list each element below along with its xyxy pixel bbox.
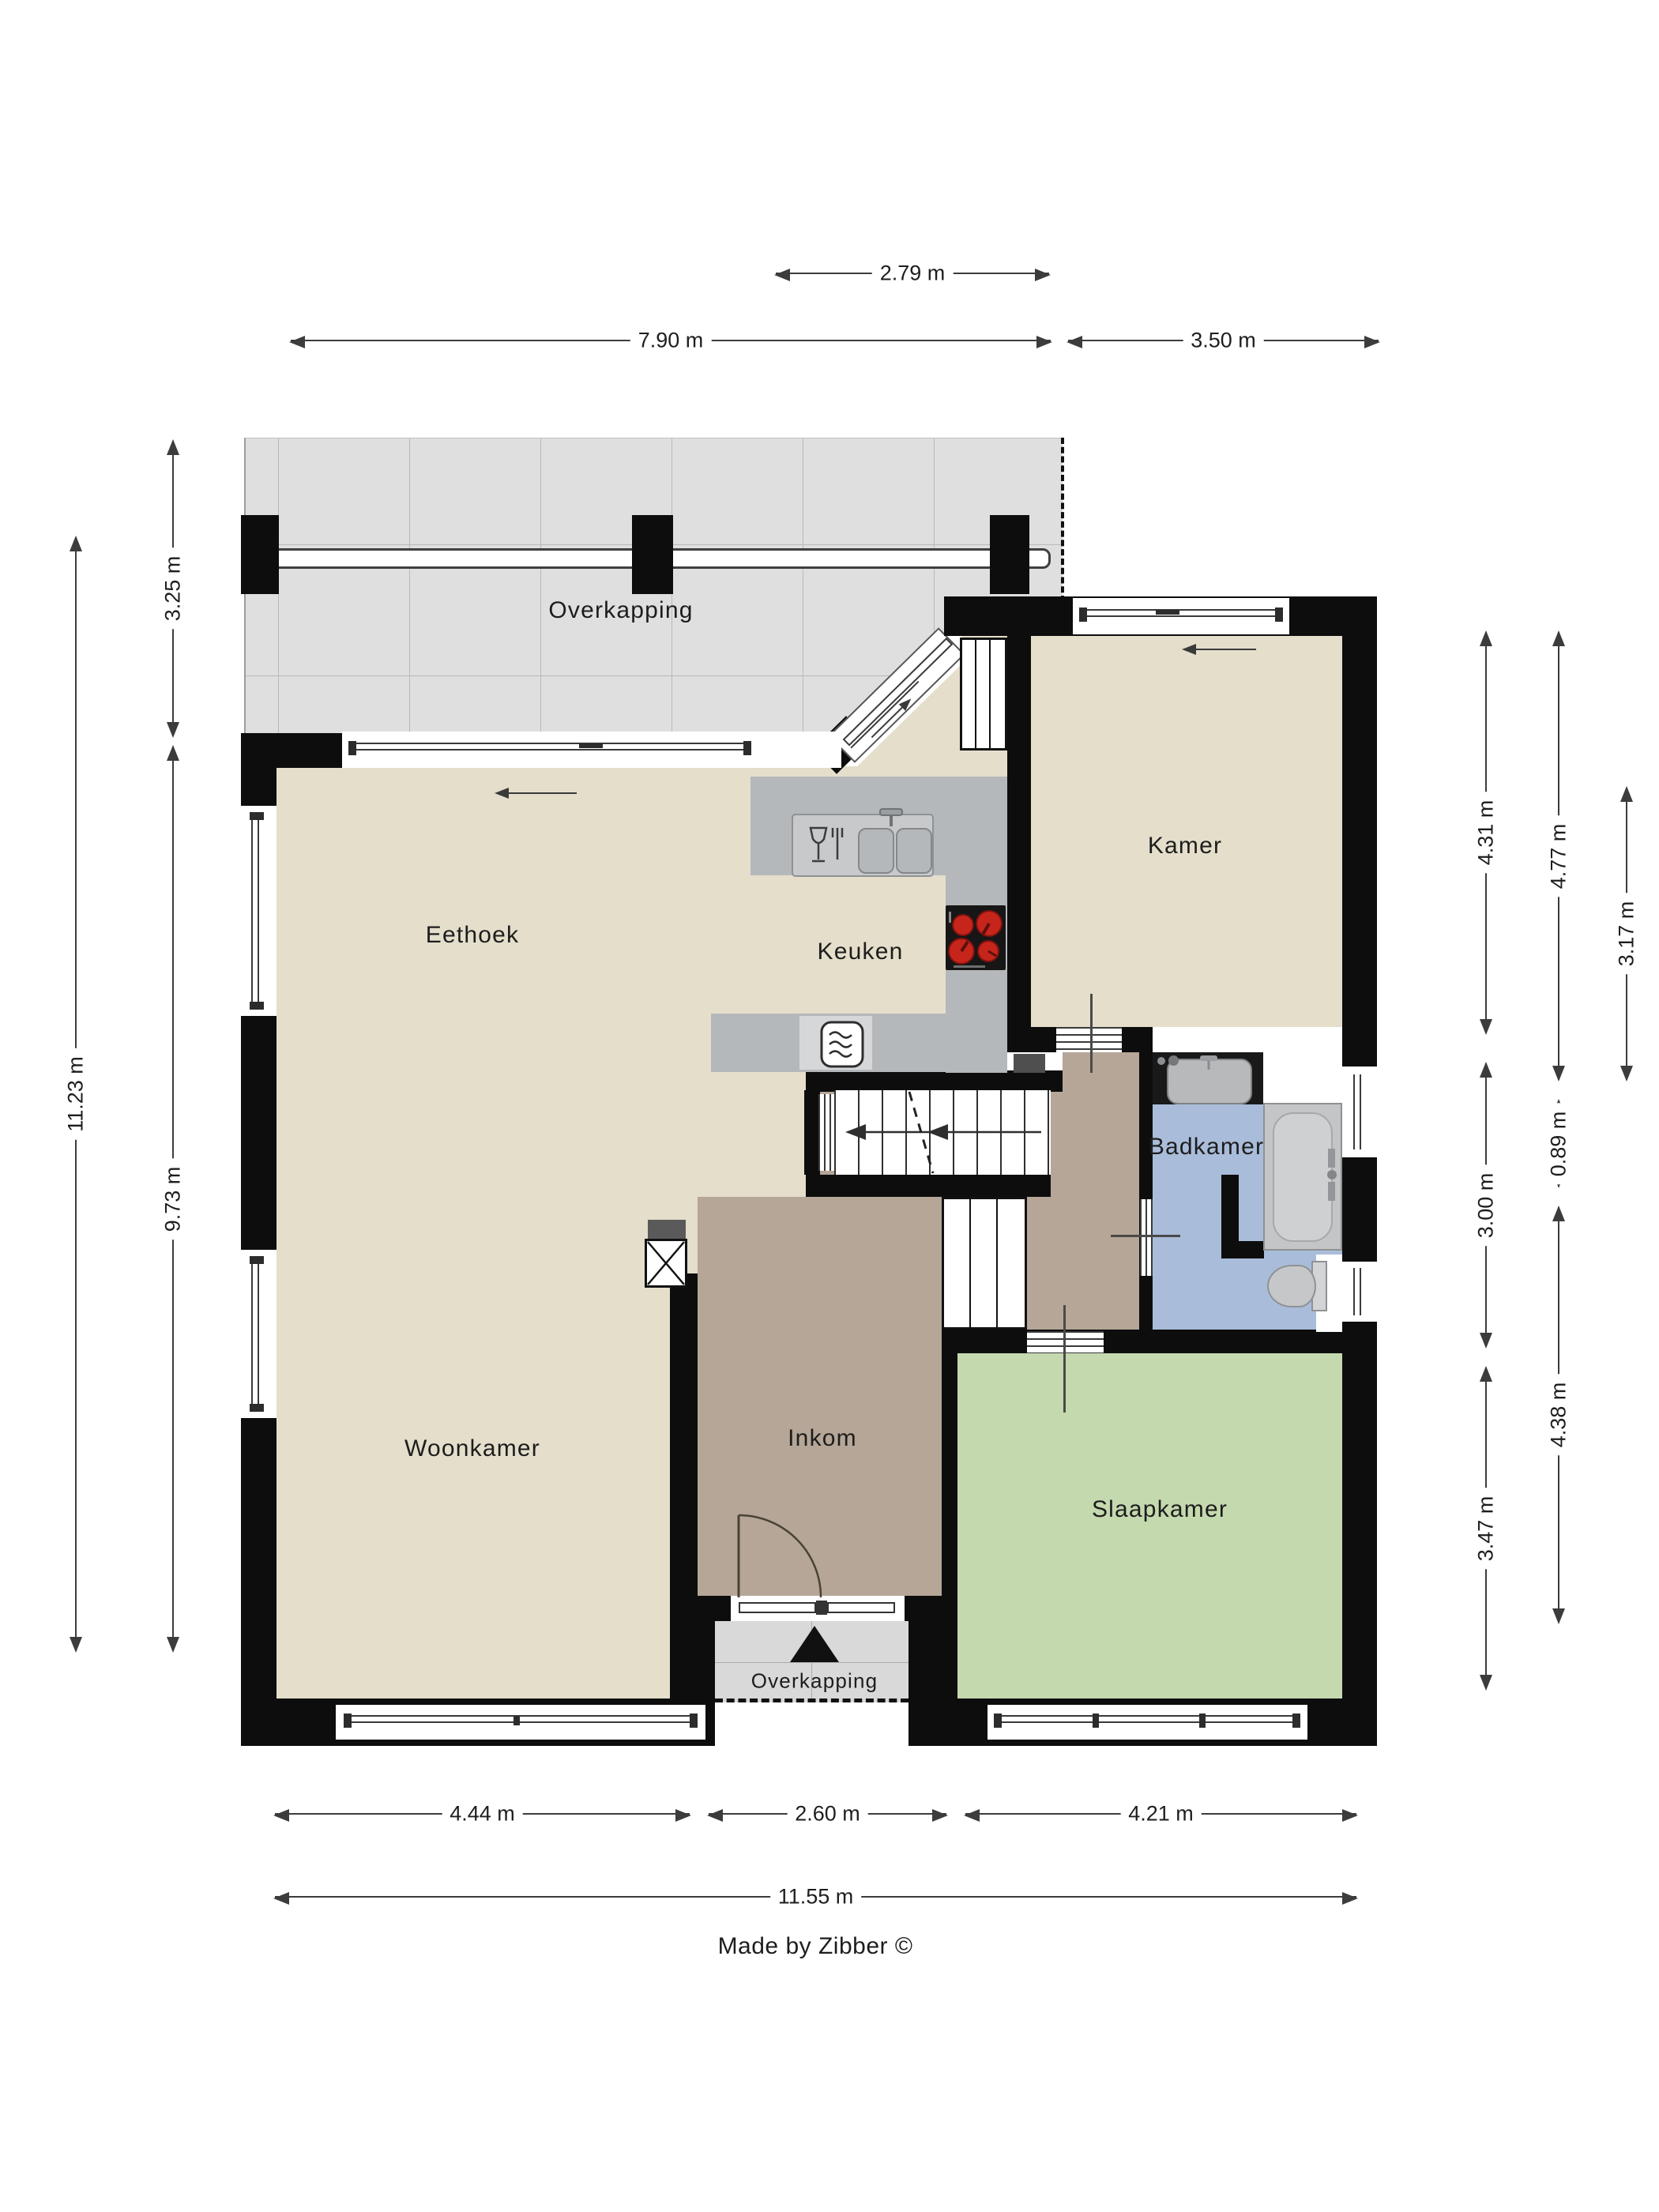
room-label-overkapping-top: Overkapping: [548, 597, 693, 624]
wall-kamer-west: [1007, 632, 1031, 1052]
dim-bottom-4-44: 4.44 m: [275, 1813, 690, 1815]
wall-entry-left: [670, 1596, 715, 1704]
window-cap: [1292, 1714, 1300, 1728]
room-floor-kamer: [1031, 636, 1342, 1027]
chimney-x-icon: [647, 1241, 685, 1285]
floorplan-page: { "title": "Floor plan (begane grond)", …: [0, 0, 1659, 2212]
window-cap: [348, 741, 356, 755]
room-label-overkapping-bottom: Overkapping: [751, 1669, 878, 1694]
footer-credit: Made by Zibber ©: [718, 1933, 913, 1960]
window-badkamer-upper: [1342, 1066, 1377, 1157]
window-cap: [743, 741, 751, 755]
dim-label: 4.77 m: [1547, 815, 1571, 897]
wall-below-stairs: [806, 1175, 1051, 1197]
window-cap: [1275, 608, 1283, 622]
room-floor-inkom-kamerdoor: [1063, 1052, 1139, 1092]
window-cap: [1199, 1714, 1206, 1728]
bathtub-inner: [1273, 1112, 1333, 1242]
terrace-post: [632, 515, 673, 594]
dim-left-9-73: 9.73 m: [172, 747, 174, 1651]
porch-grid-line: [715, 1662, 908, 1663]
window-cap: [579, 743, 603, 748]
terrace-post: [990, 515, 1029, 594]
wall-right: [1342, 596, 1377, 1746]
window-kamer-top: [1073, 598, 1289, 634]
room-label-woonkamer: Woonkamer: [404, 1435, 540, 1462]
wall-badkamer-west: [1139, 1051, 1153, 1335]
dim-label: 3.25 m: [161, 548, 186, 630]
terrace-post: [241, 515, 279, 594]
window-cap: [250, 1404, 264, 1412]
soap-dot: [1157, 1057, 1165, 1065]
room-floor-inkom-mid: [698, 1197, 1139, 1330]
window-eethoek-left: [239, 806, 276, 1016]
dim-bottom-11-55: 11.55 m: [275, 1896, 1356, 1898]
door-opening-stairs: [818, 1094, 836, 1171]
bath-vanity-counter: [1153, 1052, 1263, 1104]
window-woonkamer-left: [239, 1250, 276, 1418]
kitchen-sink-unit: [792, 814, 934, 877]
window-cap: [250, 1002, 264, 1010]
dim-left-11-23: 11.23 m: [75, 537, 77, 1651]
slide-arrow-icon: [490, 785, 585, 801]
window-glass: [997, 1715, 1297, 1723]
window-glass: [251, 1259, 259, 1409]
window-glass: [1353, 1268, 1361, 1315]
wall-entry-jamb: [715, 1596, 732, 1621]
stairs: [834, 1090, 1051, 1175]
dim-right-4-77: 4.77 m: [1558, 632, 1559, 1080]
closet-divider: [969, 1199, 971, 1327]
microwave-icon: [820, 1021, 864, 1068]
room-label-slaapkamer: Slaapkamer: [1092, 1496, 1228, 1523]
dim-bottom-2-60: 2.60 m: [709, 1813, 946, 1815]
terrace-dashed-edge: [1061, 438, 1064, 602]
bathtub-icon: [1263, 1103, 1342, 1251]
room-label-kamer: Kamer: [1148, 833, 1222, 860]
toilet-icon: [1267, 1259, 1343, 1311]
dim-label: 9.73 m: [161, 1158, 186, 1240]
closet-divider: [996, 1199, 998, 1327]
window-woonkamer-bottom: [336, 1705, 705, 1740]
closet-divider: [975, 640, 976, 748]
dim-left-3-25: 3.25 m: [172, 441, 174, 736]
dim-label: 3.00 m: [1474, 1164, 1499, 1246]
faucet-icon: [1197, 1054, 1221, 1071]
window-badkamer-lower: [1342, 1262, 1377, 1322]
dim-right-3-17: 3.17 m: [1626, 788, 1627, 1080]
slide-arrow-icon: [1177, 641, 1264, 657]
dim-top-2-79: 2.79 m: [776, 273, 1049, 274]
dim-label: 7.90 m: [630, 329, 712, 353]
dim-right-3-00: 3.00 m: [1485, 1063, 1487, 1347]
window-glass: [251, 815, 259, 1006]
dim-label: 3.50 m: [1183, 329, 1264, 353]
window-cap: [994, 1714, 1002, 1728]
door-opening-kamer: [1056, 1027, 1122, 1052]
window-eethoek-top: [342, 732, 841, 768]
window-cap: [250, 812, 264, 820]
window-glass: [1353, 1074, 1361, 1149]
window-slaapkamer-bottom: [987, 1705, 1307, 1740]
dim-right-0-89: 0.89 m: [1558, 1100, 1559, 1187]
door-sill-panel: [739, 1602, 816, 1613]
wall-bath-partition-h: [1221, 1241, 1264, 1258]
bath-shelf-niche: [1263, 1052, 1342, 1103]
dim-label: 4.21 m: [1120, 1802, 1202, 1826]
window-glass: [352, 743, 747, 750]
window-cap: [250, 1256, 264, 1264]
wall-slaapkamer-north: [942, 1330, 1345, 1353]
closet-under-stairs: [942, 1197, 1027, 1330]
dim-label: 4.31 m: [1474, 792, 1499, 874]
room-label-badkamer: Badkamer: [1149, 1134, 1264, 1161]
chimney-cap: [648, 1220, 686, 1240]
room-label-keuken: Keuken: [818, 939, 904, 965]
window-cap: [1093, 1714, 1099, 1728]
dim-label: 3.17 m: [1615, 893, 1639, 975]
chimney-flue: [645, 1239, 687, 1288]
dim-top-3-50: 3.50 m: [1068, 340, 1379, 341]
door-sill-panel: [827, 1602, 895, 1613]
dim-label: 2.79 m: [872, 261, 954, 286]
radiator-box: [1014, 1054, 1045, 1073]
door-leaf-badkamer: [1111, 1235, 1180, 1237]
dim-right-4-31: 4.31 m: [1485, 632, 1487, 1033]
stairs-arrow-icon: [834, 1090, 1051, 1175]
dim-label: 3.47 m: [1474, 1488, 1499, 1569]
wall-topleft-corner: [241, 733, 342, 768]
window-cap: [1079, 608, 1087, 622]
window-cap: [1156, 610, 1179, 615]
closet-kitchen: [960, 638, 1007, 750]
window-cap: [513, 1716, 520, 1725]
closet-divider: [989, 640, 991, 748]
window-glass: [347, 1715, 694, 1723]
room-floor-slaapkamer: [957, 1353, 1342, 1698]
dim-bottom-4-21: 4.21 m: [965, 1813, 1356, 1815]
faucet-icon: [874, 807, 908, 828]
window-glass: [1082, 609, 1278, 617]
dim-top-7-90: 7.90 m: [291, 340, 1051, 341]
dim-label: 2.60 m: [787, 1802, 868, 1826]
window-cap: [344, 1714, 352, 1728]
wall-above-stairs: [806, 1070, 1063, 1092]
window-cap: [690, 1714, 698, 1728]
wall-stairs-left: [804, 1090, 820, 1175]
room-label-eethoek: Eethoek: [426, 922, 519, 949]
dim-label: 4.38 m: [1547, 1375, 1571, 1456]
front-door-arc: [735, 1512, 826, 1604]
dim-right-4-38: 4.38 m: [1558, 1207, 1559, 1623]
dim-right-3-47: 3.47 m: [1485, 1367, 1487, 1689]
sink-basin: [896, 828, 932, 874]
room-label-inkom: Inkom: [788, 1425, 857, 1452]
porch-overkapping: Overkapping: [715, 1621, 908, 1702]
stove-burners-icon: [946, 905, 1006, 972]
dim-label: 4.44 m: [442, 1802, 523, 1826]
entrance-triangle-icon: [790, 1626, 839, 1662]
plan-canvas: Overkapping: [0, 0, 1659, 2212]
dim-label: 11.55 m: [770, 1885, 862, 1909]
dim-label: 11.23 m: [64, 1048, 88, 1140]
glass-fork-icon: [803, 825, 848, 869]
dim-label: 0.89 m: [1547, 1103, 1571, 1184]
wall-entry-right: [908, 1596, 956, 1704]
door-leaf-slaapkamer: [1063, 1305, 1066, 1413]
door-leaf-kamer: [1090, 994, 1093, 1073]
soap-dot: [1168, 1055, 1179, 1066]
toilet-bowl: [1267, 1265, 1316, 1307]
bath-taps-icon: [1325, 1149, 1345, 1201]
sink-basin: [858, 828, 894, 874]
door-opening-badkamer: [1140, 1199, 1153, 1276]
